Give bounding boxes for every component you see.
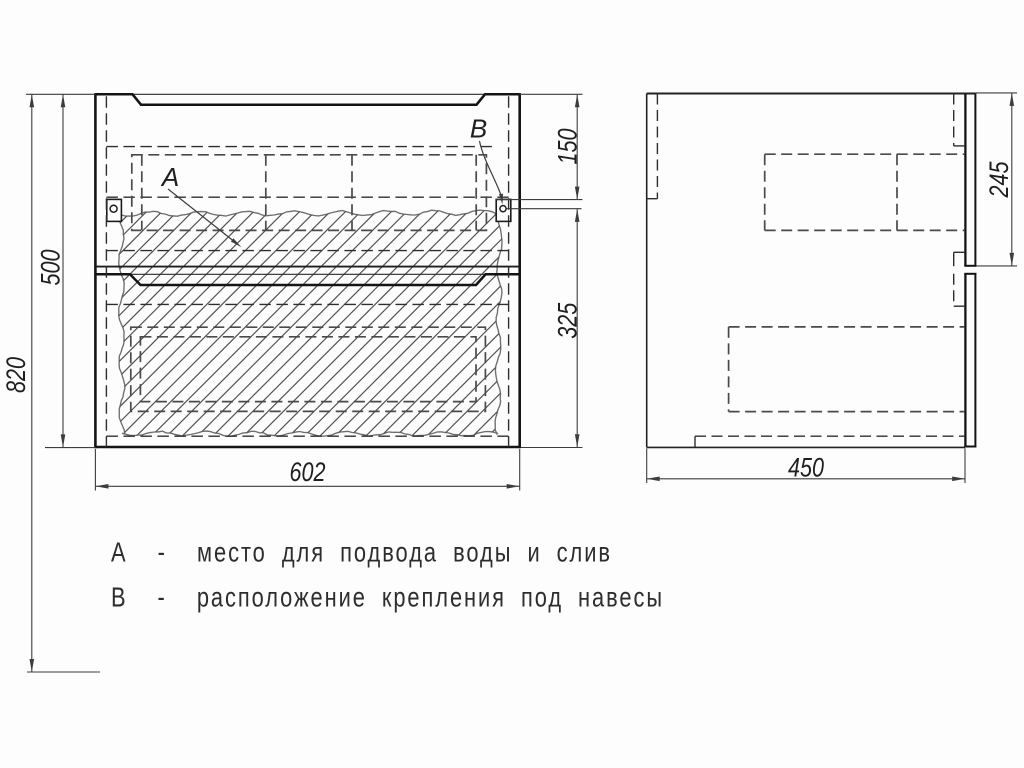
svg-text:B: B bbox=[470, 114, 487, 144]
svg-text:325: 325 bbox=[553, 302, 583, 339]
svg-text:602: 602 bbox=[290, 457, 326, 487]
svg-text:450: 450 bbox=[788, 453, 824, 483]
svg-text:В - расположение крепления п: В - расположение крепления под навесы bbox=[111, 582, 664, 613]
svg-text:820: 820 bbox=[1, 357, 31, 393]
svg-text:А - место для подвода воды и: А - место для подвода воды и слив bbox=[111, 537, 612, 568]
svg-text:500: 500 bbox=[36, 250, 66, 286]
svg-text:150: 150 bbox=[553, 129, 583, 165]
svg-text:A: A bbox=[160, 162, 179, 192]
svg-text:245: 245 bbox=[984, 161, 1014, 199]
